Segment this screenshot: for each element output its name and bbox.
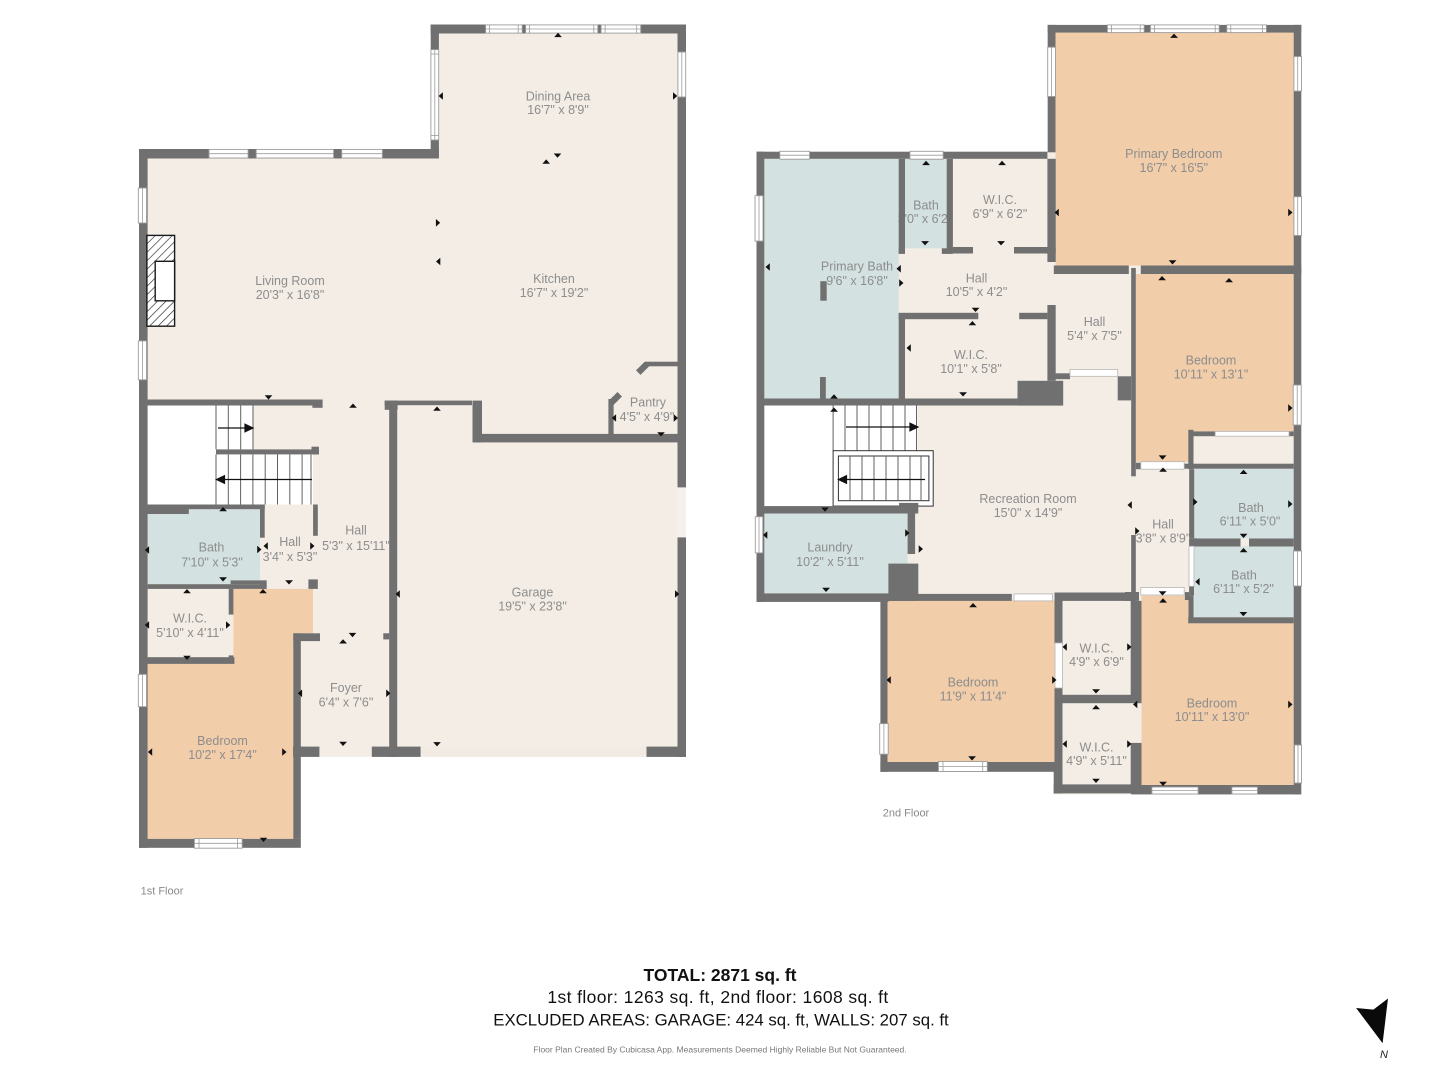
- svg-text:10'2" x 17'4": 10'2" x 17'4": [188, 748, 257, 762]
- svg-text:W.I.C.: W.I.C.: [954, 348, 988, 362]
- svg-text:10'5" x 4'2": 10'5" x 4'2": [946, 285, 1008, 299]
- svg-text:Dining Area: Dining Area: [526, 90, 591, 104]
- svg-text:10'1" x 5'8": 10'1" x 5'8": [940, 362, 1002, 376]
- svg-text:EXCLUDED AREAS: GARAGE: 424 sq: EXCLUDED AREAS: GARAGE: 424 sq. ft, WALL…: [493, 1011, 949, 1030]
- svg-text:W.I.C.: W.I.C.: [983, 193, 1017, 207]
- svg-text:1st Floor: 1st Floor: [141, 886, 184, 898]
- svg-text:10'2" x 5'11": 10'2" x 5'11": [796, 555, 864, 569]
- svg-text:Foyer: Foyer: [330, 681, 362, 695]
- svg-text:6'9" x 6'2": 6'9" x 6'2": [973, 207, 1028, 221]
- svg-text:Bedroom: Bedroom: [197, 734, 248, 748]
- svg-text:2nd Floor: 2nd Floor: [883, 808, 930, 820]
- svg-text:Laundry: Laundry: [807, 541, 853, 555]
- svg-text:6'4" x 7'6": 6'4" x 7'6": [319, 696, 374, 710]
- svg-text:16'7" x 8'9": 16'7" x 8'9": [527, 103, 589, 117]
- svg-text:W.I.C.: W.I.C.: [1079, 741, 1113, 755]
- svg-text:5'4" x 7'5": 5'4" x 7'5": [1067, 329, 1122, 343]
- svg-text:1st floor: 1263 sq. ft, 2nd fl: 1st floor: 1263 sq. ft, 2nd floor: 1608 …: [547, 987, 888, 1007]
- svg-text:6'11" x 5'0": 6'11" x 5'0": [1220, 515, 1281, 529]
- svg-text:3'8" x 8'9": 3'8" x 8'9": [1136, 532, 1191, 546]
- svg-text:Primary Bedroom: Primary Bedroom: [1125, 147, 1222, 161]
- svg-text:N: N: [1380, 1049, 1388, 1061]
- svg-text:11'9" x 11'4": 11'9" x 11'4": [940, 690, 1007, 704]
- svg-text:6'11" x 5'2": 6'11" x 5'2": [1213, 582, 1274, 596]
- svg-text:19'5" x 23'8": 19'5" x 23'8": [498, 600, 567, 614]
- svg-text:Recreation Room: Recreation Room: [979, 492, 1076, 506]
- svg-text:10'11" x 13'0": 10'11" x 13'0": [1175, 710, 1250, 724]
- svg-text:16'7" x 16'5": 16'7" x 16'5": [1140, 161, 1209, 175]
- svg-text:Hall: Hall: [1152, 518, 1174, 532]
- svg-text:Bath: Bath: [1231, 569, 1257, 583]
- svg-text:5'10" x 4'11": 5'10" x 4'11": [156, 626, 224, 640]
- svg-text:Bath: Bath: [199, 541, 225, 555]
- svg-text:20'3" x 16'8": 20'3" x 16'8": [256, 288, 325, 302]
- svg-text:Pantry: Pantry: [630, 396, 667, 410]
- svg-text:Garage: Garage: [512, 586, 554, 600]
- svg-text:5'3" x 15'11": 5'3" x 15'11": [322, 539, 390, 553]
- svg-text:Bath: Bath: [913, 199, 939, 213]
- svg-text:Hall: Hall: [279, 535, 301, 549]
- svg-text:3'4" x 5'3": 3'4" x 5'3": [263, 550, 318, 564]
- svg-text:Hall: Hall: [966, 272, 988, 286]
- svg-text:Hall: Hall: [345, 524, 367, 538]
- svg-text:7'10" x 5'3": 7'10" x 5'3": [181, 556, 243, 570]
- svg-text:Living Room: Living Room: [255, 274, 324, 288]
- svg-text:Hall: Hall: [1084, 315, 1106, 329]
- svg-text:4'9" x 5'11": 4'9" x 5'11": [1066, 754, 1127, 768]
- svg-text:4'5" x 4'9": 4'5" x 4'9": [620, 410, 675, 424]
- svg-text:3'0" x 6'2": 3'0" x 6'2": [898, 212, 953, 226]
- svg-text:9'6" x 16'8": 9'6" x 16'8": [826, 274, 888, 288]
- svg-text:TOTAL: 2871 sq. ft: TOTAL: 2871 sq. ft: [644, 965, 797, 985]
- svg-text:Bedroom: Bedroom: [1186, 354, 1237, 368]
- svg-text:W.I.C.: W.I.C.: [173, 612, 207, 626]
- svg-text:10'11" x 13'1": 10'11" x 13'1": [1174, 368, 1249, 382]
- svg-text:Floor Plan Created By Cubicasa: Floor Plan Created By Cubicasa App. Meas…: [533, 1045, 906, 1055]
- svg-text:4'9" x 6'9": 4'9" x 6'9": [1069, 655, 1124, 669]
- svg-text:Bedroom: Bedroom: [948, 676, 999, 690]
- svg-text:Kitchen: Kitchen: [533, 272, 575, 286]
- svg-text:Primary Bath: Primary Bath: [821, 260, 893, 274]
- svg-text:Bedroom: Bedroom: [1187, 697, 1238, 711]
- svg-text:16'7" x 19'2": 16'7" x 19'2": [520, 286, 589, 300]
- svg-text:W.I.C.: W.I.C.: [1079, 642, 1113, 656]
- svg-text:15'0" x 14'9": 15'0" x 14'9": [994, 506, 1063, 520]
- svg-text:Bath: Bath: [1238, 501, 1264, 515]
